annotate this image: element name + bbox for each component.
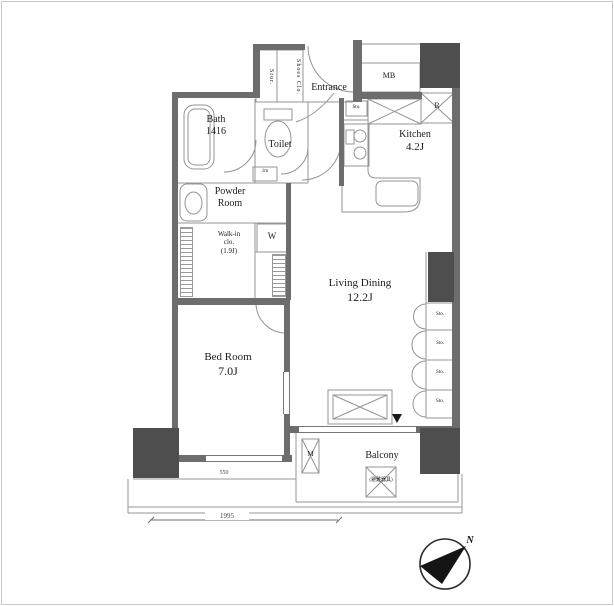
walk-in-closet-label: Walk-inclo.(1.9J) bbox=[198, 230, 260, 255]
meter-box-label: MB bbox=[372, 71, 406, 80]
wall-storage-label: Sto. bbox=[427, 370, 453, 376]
window-living-balcony bbox=[299, 426, 416, 433]
powder-room-label: PowderRoom bbox=[196, 186, 264, 210]
kitchen-storage-label: Sto. bbox=[347, 105, 366, 111]
compass-north-label: N bbox=[461, 535, 479, 547]
bath-label: Bath1416 bbox=[184, 114, 248, 138]
shoes-closet-label: Shoes Clo. bbox=[278, 52, 302, 102]
direction-arrow-icon bbox=[392, 414, 402, 423]
wall bbox=[286, 426, 300, 433]
wall-storage-label: Sto. bbox=[427, 312, 453, 318]
entrance-label: Entrance bbox=[300, 82, 358, 94]
wall-storage-label: Sto. bbox=[427, 399, 453, 405]
meter-label: M bbox=[303, 450, 318, 458]
balcony-label: Balcony bbox=[346, 450, 418, 462]
window-height-note: 550 bbox=[200, 470, 248, 477]
closet-shelf-hatch bbox=[272, 254, 286, 297]
floor-plan: Bath1416 Toilet 1m Stor. Shoes Clo. Entr… bbox=[0, 0, 614, 606]
wall bbox=[286, 183, 291, 300]
storage-label: Stor. bbox=[259, 54, 275, 100]
pillar bbox=[133, 428, 179, 478]
evacuation-hatch-label: (避難器具) bbox=[364, 478, 398, 484]
balcony-dimension: 1995 bbox=[205, 512, 249, 520]
pillar bbox=[428, 252, 454, 302]
pillar bbox=[420, 428, 460, 474]
wall bbox=[339, 98, 344, 186]
refrigerator-label: R bbox=[426, 101, 448, 110]
wall bbox=[172, 92, 260, 98]
wall-storage-label: Sto. bbox=[427, 341, 453, 347]
living-dining-label: Living Dining12.2J bbox=[298, 277, 422, 305]
wall bbox=[172, 298, 290, 305]
washer-label: W bbox=[258, 231, 286, 242]
wall bbox=[253, 44, 305, 50]
closet-shelf-hatch bbox=[180, 227, 193, 297]
wall bbox=[356, 92, 422, 99]
toilet-label: Toilet bbox=[248, 139, 312, 151]
toilet-shelf-label: 1m bbox=[254, 169, 276, 175]
kitchen-label: Kitchen4.2J bbox=[384, 129, 446, 154]
window-bedroom bbox=[206, 455, 282, 462]
bed-room-label: Bed Room7.0J bbox=[166, 351, 290, 379]
wall bbox=[176, 455, 208, 462]
pillar bbox=[420, 43, 460, 88]
wall bbox=[172, 92, 178, 430]
